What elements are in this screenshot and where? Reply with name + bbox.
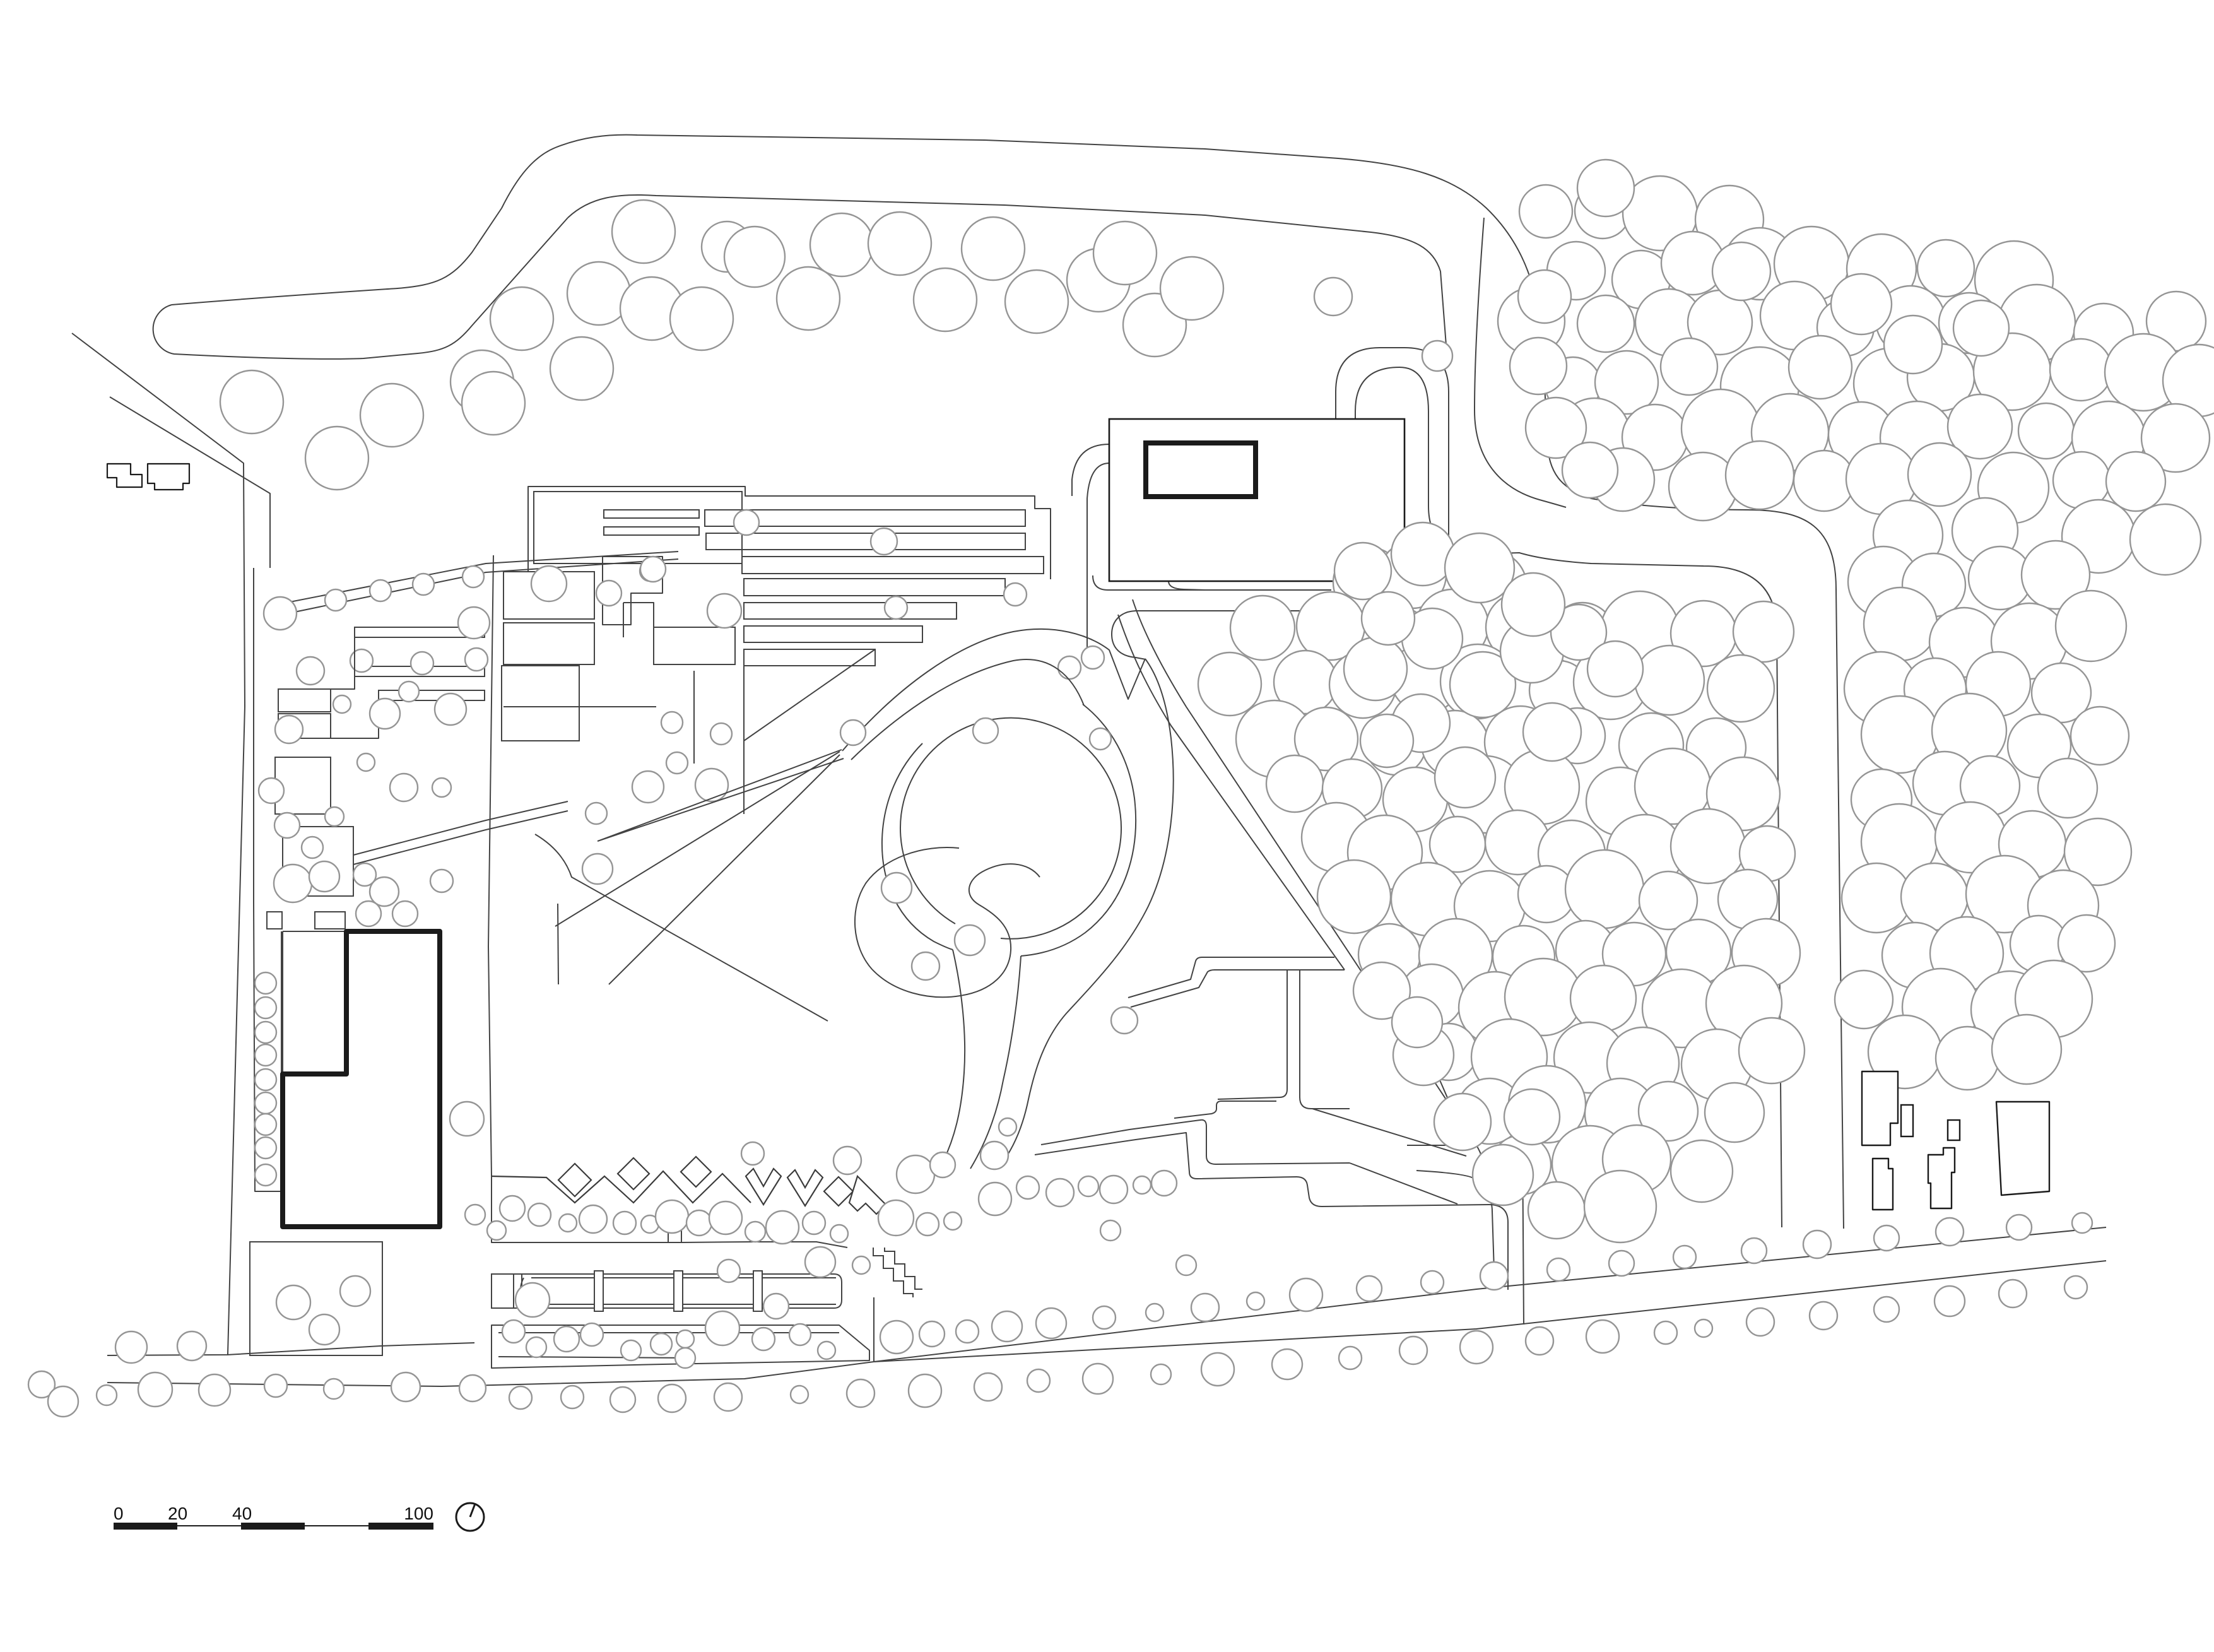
svg-text:40: 40: [232, 1504, 252, 1523]
svg-text:20: 20: [168, 1504, 187, 1523]
svg-text:0: 0: [114, 1504, 124, 1523]
svg-text:100: 100: [404, 1504, 433, 1523]
